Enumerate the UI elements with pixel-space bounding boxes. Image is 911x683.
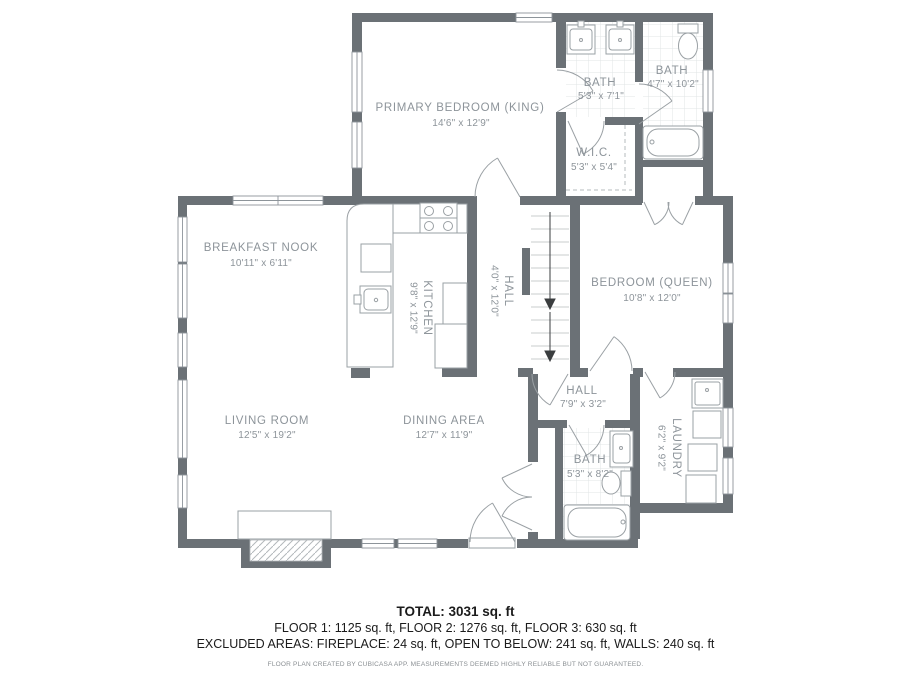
double-door-closet	[644, 202, 693, 225]
room-dims-breakfast-nook: 10'11" x 6'11"	[230, 258, 292, 269]
window	[233, 196, 323, 205]
door-laundry	[645, 372, 675, 398]
room-label-breakfast-nook: BREAKFAST NOOK	[204, 242, 318, 254]
staircase	[531, 212, 569, 361]
door-entry	[469, 503, 515, 548]
counter-right-upper	[443, 283, 467, 324]
room-dims-bedroom-queen: 10'8" x 12'0"	[623, 293, 681, 304]
laundry-fixtures	[686, 379, 723, 503]
bathtub-icon	[564, 505, 630, 540]
window	[723, 408, 733, 447]
window	[178, 217, 187, 262]
room-dims-laundry: 6'2" x 9'2"	[656, 425, 667, 471]
dryer-icon	[688, 444, 717, 471]
room-dims-bath-lower: 5'3" x 8'2"	[567, 469, 613, 480]
room-label-primary-bedroom: PRIMARY BEDROOM (KING)	[376, 102, 545, 114]
room-label-living-room: LIVING ROOM	[225, 415, 309, 427]
window	[723, 263, 733, 293]
window	[178, 380, 187, 458]
room-dims-bath-top-2: 4'7" x 10'2"	[647, 79, 699, 90]
window	[178, 475, 187, 508]
room-dims-living-room: 12'5" x 19'2"	[238, 430, 296, 441]
stairs-down-arrow	[545, 212, 555, 361]
washer-icon	[693, 411, 721, 438]
room-dims-dining-area: 12'7" x 11'9"	[416, 430, 473, 441]
door-primary-bedroom	[475, 158, 520, 197]
window	[352, 52, 362, 112]
utility-sink-icon	[692, 379, 723, 408]
room-label-bedroom-queen: BEDROOM (QUEEN)	[591, 277, 713, 289]
refrigerator-icon	[435, 324, 467, 368]
room-dims-kitchen: 9'8" x 12'9"	[408, 282, 419, 334]
room-label-wic: W.I.C.	[576, 147, 612, 159]
room-label-hall-upper: HALL	[502, 275, 514, 307]
room-label-dining-area: DINING AREA	[403, 415, 485, 427]
toilet-icon	[678, 24, 698, 59]
room-dims-hall-lower: 7'9" x 3'2"	[560, 399, 606, 410]
window	[352, 122, 362, 168]
window	[362, 539, 394, 548]
room-dims-wic: 5'3" x 5'4"	[571, 162, 617, 173]
double-door-dining	[502, 464, 532, 530]
disclaimer-text: FLOOR PLAN CREATED BY CUBICASA APP. MEAS…	[0, 661, 911, 668]
window	[398, 539, 437, 548]
window	[178, 333, 187, 367]
dishwasher-icon	[361, 244, 391, 272]
stove-icon	[420, 203, 457, 233]
room-dims-primary-bedroom: 14'6" x 12'9"	[432, 118, 490, 129]
sink-icon	[567, 21, 595, 54]
room-dims-bath-top-1: 5'3" x 7'1"	[578, 91, 624, 102]
kitchen-fixtures	[347, 203, 467, 368]
fireplace	[238, 511, 331, 568]
floor-areas-text: FLOOR 1: 1125 sq. ft, FLOOR 2: 1276 sq. …	[0, 620, 911, 636]
window	[703, 70, 713, 112]
room-label-kitchen: KITCHEN	[421, 280, 433, 335]
window	[178, 264, 187, 318]
kitchen-sink-icon	[354, 286, 391, 313]
hearth	[238, 511, 331, 539]
floor-plan-page: PRIMARY BEDROOM (KING) 14'6" x 12'9" BAT…	[0, 0, 911, 683]
window	[516, 13, 552, 22]
door-bedroom-queen	[590, 337, 632, 371]
appliance-icon	[686, 475, 716, 503]
window	[723, 294, 733, 323]
room-dims-hall-upper: 4'0" x 12'0"	[489, 265, 500, 317]
floor-plan-canvas: PRIMARY BEDROOM (KING) 14'6" x 12'9" BAT…	[0, 0, 911, 600]
sink-icon	[610, 431, 633, 467]
excluded-areas-text: EXCLUDED AREAS: FIREPLACE: 24 sq. ft, OP…	[0, 636, 911, 652]
total-area-text: TOTAL: 3031 sq. ft	[0, 603, 911, 620]
room-label-bath-top-2: BATH	[656, 65, 689, 77]
room-label-hall-lower: HALL	[566, 385, 598, 397]
room-label-bath-lower: BATH	[574, 454, 607, 466]
room-label-bath-top-1: BATH	[584, 77, 617, 89]
bathtub-icon	[643, 126, 703, 159]
summary-footer: TOTAL: 3031 sq. ft FLOOR 1: 1125 sq. ft,…	[0, 603, 911, 668]
room-label-laundry: LAUNDRY	[670, 418, 682, 478]
window	[723, 458, 733, 494]
sink-icon	[606, 21, 634, 54]
